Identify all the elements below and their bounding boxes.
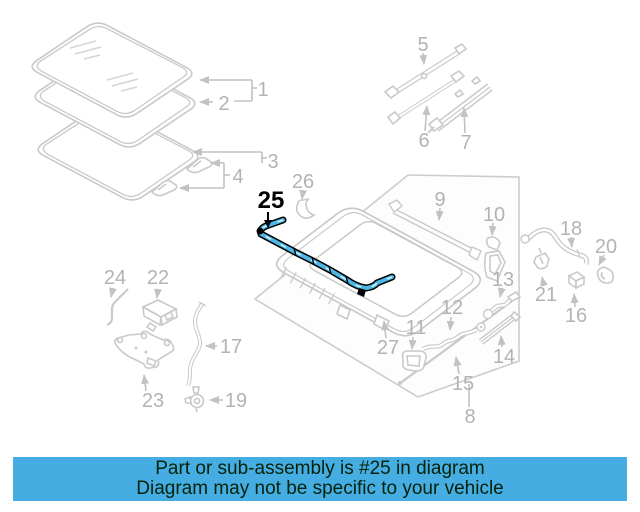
- part-rail-7: [428, 77, 490, 133]
- callout-25-highlighted: 25: [258, 187, 285, 214]
- callout-21: 21: [535, 284, 557, 306]
- callout-6: 6: [418, 130, 429, 152]
- part-rod-24: [107, 289, 128, 325]
- callout-26: 26: [292, 171, 314, 193]
- part-drain-hose-17: [188, 302, 206, 386]
- banner-line-2: Diagram may not be specific to your vehi…: [136, 478, 504, 499]
- part-mount-plate-23: [115, 331, 174, 368]
- callout-23: 23: [142, 390, 164, 412]
- banner-line-1: Part or sub-assembly is #25 in diagram: [155, 458, 484, 479]
- sunroof-parts-diagram: 1 2 3 4 5 6 7 8 9 10 11 12 13 14 15 16 1…: [0, 0, 640, 512]
- part-motor-22: [143, 300, 177, 331]
- callout-5: 5: [417, 34, 428, 56]
- part-hook-20: [598, 267, 614, 283]
- callout-24: 24: [104, 267, 126, 289]
- part-corner-bracket-26: [297, 199, 314, 218]
- callout-4: 4: [232, 166, 243, 188]
- callout-11: 11: [406, 317, 427, 339]
- part-block-16: [569, 272, 584, 288]
- callout-22: 22: [147, 267, 169, 289]
- part-pad-11: [403, 351, 427, 371]
- callout-7: 7: [460, 132, 471, 154]
- callout-20: 20: [595, 236, 617, 258]
- callout-12: 12: [441, 297, 463, 319]
- callout-16: 16: [565, 305, 587, 327]
- callout-2: 2: [218, 93, 229, 115]
- callout-15: 15: [452, 373, 474, 395]
- callout-18: 18: [560, 218, 582, 240]
- parts-diagram-page: 1 2 3 4 5 6 7 8 9 10 11 12 13 14 15 16 1…: [0, 0, 640, 512]
- info-banner: Part or sub-assembly is #25 in diagram D…: [13, 457, 627, 501]
- callout-10: 10: [483, 204, 505, 226]
- callout-3: 3: [267, 151, 278, 173]
- part-drain-valve-19: [185, 387, 204, 412]
- callout-19: 19: [225, 390, 247, 412]
- part-clip-21: [534, 248, 549, 269]
- callout-27: 27: [377, 337, 399, 359]
- callout-17: 17: [220, 336, 242, 358]
- callout-8: 8: [464, 406, 475, 428]
- callout-9: 9: [434, 189, 445, 211]
- callout-14: 14: [493, 346, 515, 368]
- callout-13: 13: [492, 269, 514, 291]
- callout-1: 1: [257, 79, 268, 101]
